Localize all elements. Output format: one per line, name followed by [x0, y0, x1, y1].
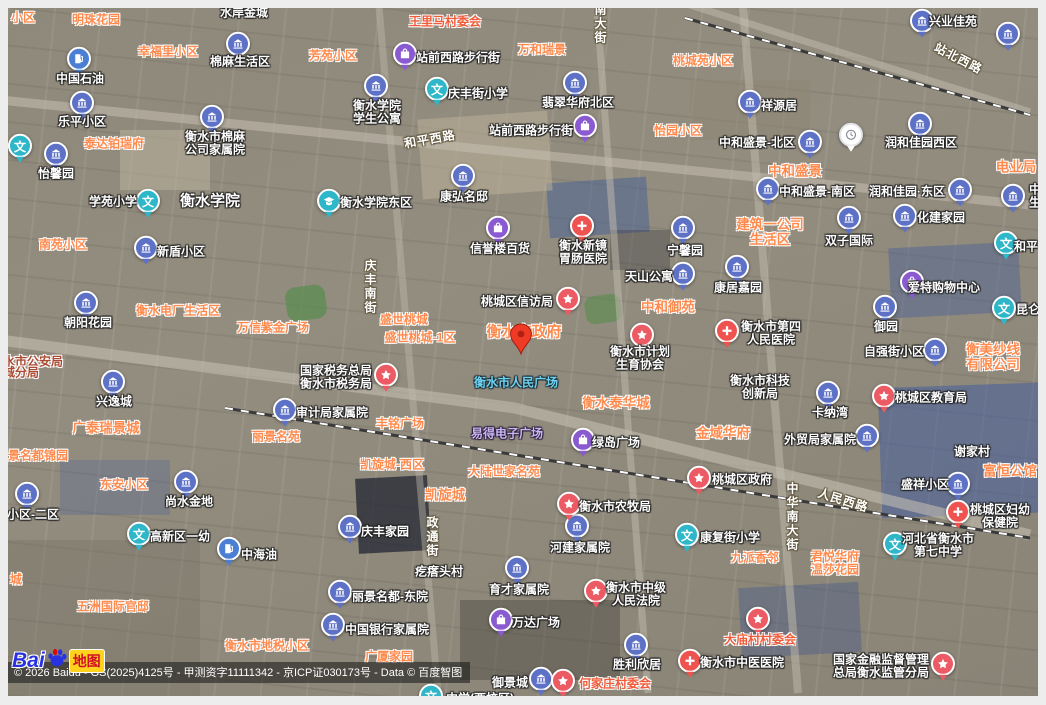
star-icon[interactable] — [551, 669, 575, 693]
shop-icon[interactable] — [393, 42, 417, 66]
dishui-xiaoqu[interactable]: 衡水市地税小区 — [225, 639, 309, 652]
bank-icon[interactable] — [451, 164, 475, 188]
hengshui-xueyuan-dongqu[interactable]: 衡水学院东区 — [340, 196, 412, 209]
mianma-shenghuoqu[interactable]: 棉麻生活区 — [210, 55, 270, 68]
xingfuli-xiaoqu[interactable]: 幸福里小区 — [138, 45, 198, 58]
cheng-partial[interactable]: 城 — [10, 573, 22, 586]
leping-xiaoqu[interactable]: 乐平小区 — [58, 115, 106, 128]
bank-icon[interactable] — [624, 633, 648, 657]
kangfujie-xiaoxue[interactable]: 康复街小学 — [700, 531, 760, 544]
bank-icon[interactable] — [671, 216, 695, 240]
star-icon[interactable] — [746, 607, 770, 631]
baidu-paw-icon — [46, 647, 68, 674]
hospital-icon[interactable] — [946, 500, 970, 524]
qingfeng-jiayuan[interactable]: 庆丰家园 — [361, 525, 409, 538]
gas-icon[interactable] — [217, 537, 241, 561]
xinjing-weichang-yiyuan[interactable]: 衡水新镜胃肠医院 — [559, 240, 607, 267]
shop-icon[interactable] — [489, 608, 513, 632]
huajian-jiayuan[interactable]: 化建家园 — [917, 211, 965, 224]
jinyu-huafu[interactable]: 金域华府 — [696, 425, 750, 440]
diqi-zhongxue[interactable]: 河北省衡水市第七中学 — [902, 533, 974, 560]
dianyeju[interactable]: 电业局 — [996, 159, 1037, 174]
lvdao-guangchang[interactable]: 绿岛广场 — [592, 436, 640, 449]
map-canvas[interactable]: Bai 地图 © 2026 Baidu - GS(2025)4125号 - 甲测… — [8, 8, 1038, 696]
jianzhu-yigongsi-shenghuoqu[interactable]: 建筑一公司生活区 — [736, 217, 804, 247]
shengshi-taocheng-1qu[interactable]: 盛世桃城-1区 — [385, 331, 456, 344]
dongan-xiaoqu[interactable]: 东安小区 — [100, 478, 148, 491]
bank-icon[interactable] — [923, 338, 947, 362]
yiyuan-xiaoqu[interactable]: 怡园小区 — [654, 124, 702, 137]
waimaoju-jiashuyuan[interactable]: 外贸局家属院 — [784, 433, 856, 446]
bank-icon[interactable] — [200, 105, 224, 129]
zhonghe-shengjing[interactable]: 中和盛景 — [768, 163, 822, 178]
yucai-jiashuyuan[interactable]: 育才家属院 — [489, 583, 549, 596]
lijing-mingdu-dongyuan[interactable]: 丽景名都-东院 — [352, 590, 428, 603]
wanda-guangchang[interactable]: 万达广场 — [512, 616, 560, 629]
bank-icon[interactable] — [893, 204, 917, 228]
xingyicheng[interactable]: 兴逸城 — [96, 395, 132, 408]
nongmuju[interactable]: 衡水市农牧局 — [579, 500, 651, 513]
wuzhou-guoji-guandi[interactable]: 五洲国际官邸 — [77, 600, 149, 613]
bank-icon[interactable] — [70, 91, 94, 115]
star-icon[interactable] — [374, 363, 398, 387]
fengming-guangchang[interactable]: 丰铭广场 — [376, 417, 424, 430]
tianshan-gongyu[interactable]: 天山公寓 — [625, 270, 673, 283]
zhanqian-xilu-buxingjie-1[interactable]: 站前西路步行街 — [416, 51, 500, 64]
bank-icon[interactable] — [15, 482, 39, 506]
baidu-logo[interactable]: Bai 地图 — [12, 647, 105, 674]
bank-icon[interactable] — [996, 22, 1020, 46]
fangyuan-xiaoqu[interactable]: 芳苑小区 — [309, 49, 357, 62]
school-icon[interactable]: 文 — [136, 189, 160, 213]
bank-icon[interactable] — [364, 74, 388, 98]
shop-icon[interactable] — [573, 114, 597, 138]
clock-icon[interactable] — [839, 123, 863, 147]
gedatoucun[interactable]: 疙瘩头村 — [415, 565, 463, 578]
bank-icon[interactable] — [174, 470, 198, 494]
yuyuan[interactable]: 御园 — [874, 320, 898, 333]
bank-icon[interactable] — [1001, 184, 1025, 208]
xueyuan-xiaoxue[interactable]: 学苑小学 — [89, 195, 137, 208]
bank-icon[interactable] — [134, 236, 158, 260]
shuian-jincheng[interactable]: 水岸金城 — [220, 8, 268, 20]
shengshi-taocheng[interactable]: 盛世桃城 — [380, 313, 428, 326]
bank-icon[interactable] — [873, 295, 897, 319]
aite-gouwu-zhongxin[interactable]: 爱特购物中心 — [908, 281, 980, 294]
xiaoqu-erqu-partial[interactable]: 小区-二区 — [8, 508, 59, 521]
zhonghe-shengjing-beiqu[interactable]: 中和盛景-北区 — [719, 136, 795, 149]
bank-icon[interactable] — [725, 255, 749, 279]
school-icon[interactable]: 文 — [992, 296, 1016, 320]
zhongji-renmin-fayuan[interactable]: 衡水市中级人民法院 — [606, 582, 666, 609]
nanyuan-xiaoqu[interactable]: 南苑小区 — [39, 238, 87, 251]
bank-icon[interactable] — [816, 381, 840, 405]
wanxin-zijin-guangchang[interactable]: 万信紫金广场 — [237, 321, 309, 334]
jihua-shengyu-xiehui[interactable]: 衡水市计划生育协会 — [610, 346, 670, 373]
bank-icon[interactable] — [328, 580, 352, 604]
kaixuancheng-xiqu[interactable]: 凯旋城-西区 — [360, 458, 424, 471]
bank-icon[interactable] — [908, 112, 932, 136]
ziqiangjie-xiaoqu[interactable]: 自强街小区 — [864, 345, 924, 358]
star-icon[interactable] — [931, 652, 955, 676]
baidu-logo-text: Bai — [12, 649, 45, 673]
ningxinyuan[interactable]: 宁馨园 — [667, 244, 703, 257]
edge-partial-right[interactable]: 中生 — [1029, 184, 1038, 211]
taochengqu-xinfangju[interactable]: 桃城区信访局 — [481, 295, 553, 308]
kaixuancheng[interactable]: 凯旋城 — [425, 487, 466, 502]
xindun-xiaoqu[interactable]: 新盾小区 — [157, 245, 205, 258]
wanhe-ruijing[interactable]: 万和瑞景 — [518, 43, 566, 56]
taochengqu-fuyou-baojianyuan[interactable]: 桃城区妇幼保健院 — [970, 504, 1030, 531]
kangju-jiayuan[interactable]: 康居嘉园 — [714, 281, 762, 294]
hejiazhuang-cunweihui[interactable]: 何家庄村委会 — [579, 677, 651, 690]
yide-dianzi-guangchang[interactable]: 易得电子广场 — [471, 427, 543, 440]
shengxiang-xiaoqu[interactable]: 盛祥小区 — [901, 478, 949, 491]
damiaocun-cunweihui[interactable]: 大庙村村委会 — [724, 633, 796, 646]
bank-icon[interactable] — [563, 71, 587, 95]
xinyulou-baihuo[interactable]: 信誉楼百货 — [470, 242, 530, 255]
bank-icon[interactable] — [338, 515, 362, 539]
gaoxinqu-yiyou[interactable]: 高新区一幼 — [150, 530, 210, 543]
bank-icon[interactable] — [505, 556, 529, 580]
hengmei-shaxian[interactable]: 衡美纱线有限公司 — [966, 342, 1020, 372]
bank-icon[interactable] — [321, 613, 345, 637]
star-icon[interactable] — [557, 492, 581, 516]
bank-icon[interactable] — [798, 130, 822, 154]
lijing-mingyuan[interactable]: 丽景名苑 — [252, 430, 300, 443]
bank-icon[interactable] — [226, 32, 250, 56]
zhonghaiyou[interactable]: 中海油 — [241, 548, 277, 561]
bank-icon[interactable] — [529, 667, 553, 691]
hospital-icon[interactable] — [715, 319, 739, 343]
xiejiacun[interactable]: 谢家村 — [954, 445, 990, 458]
jiupai-xianglin[interactable]: 九派香邻 — [731, 551, 779, 564]
star-icon[interactable] — [584, 579, 608, 603]
dianchang-shenghuoqu[interactable]: 衡水电厂生活区 — [136, 304, 220, 317]
shuangzi-guoji[interactable]: 双子国际 — [825, 234, 873, 247]
school-icon[interactable]: 文 — [127, 522, 151, 546]
gonganju-line2[interactable]: 城分局 — [8, 366, 39, 379]
taochengqu-jiaoyuju[interactable]: 桃城区教育局 — [895, 391, 967, 404]
road-nandajie: 南大街 — [594, 8, 606, 45]
runhe-jiayuan-xiqu[interactable]: 润和佳园西区 — [885, 136, 957, 149]
keji-chuangxinju[interactable]: 衡水市科技创新局 — [730, 375, 790, 402]
road-zhonghua-nandajie: 中华南大街 — [786, 482, 798, 552]
bank-icon[interactable] — [44, 142, 68, 166]
kunlun-partial[interactable]: 昆仑 — [1016, 303, 1038, 316]
taida-boruifu[interactable]: 泰达铂瑞府 — [84, 137, 144, 150]
zhongguo-shiyou[interactable]: 中国石油 — [56, 72, 104, 85]
xingye-jiayuan[interactable]: 兴业佳苑 — [929, 15, 977, 28]
yujingcheng[interactable]: 御景城 — [492, 676, 528, 689]
bank-icon[interactable] — [948, 178, 972, 202]
star-icon[interactable] — [687, 466, 711, 490]
hengshui-xueyuan-xuesheng-gongyu[interactable]: 衡水学院学生公寓 — [353, 100, 401, 127]
baidu-logo-suffix: 地图 — [69, 649, 105, 673]
xixiaoqu-partial[interactable]: 中学(西校区) — [446, 692, 514, 696]
zhonghe-shengjing-nanqu[interactable]: 中和盛景-南区 — [779, 185, 855, 198]
bank-icon[interactable] — [946, 472, 970, 496]
guangtai-ruijingcheng[interactable]: 广泰瑞景城 — [72, 420, 140, 435]
feicui-huafu-beiqu[interactable]: 翡翠华府北区 — [542, 96, 614, 109]
school-icon[interactable]: 文 — [8, 134, 32, 158]
shangshui-jindi[interactable]: 尚水金地 — [165, 495, 213, 508]
zhongguo-yinhang-jiashuyuan[interactable]: 中国银行家属院 — [345, 623, 429, 636]
selected-location-pin[interactable] — [509, 323, 533, 360]
hospital-icon[interactable] — [570, 214, 594, 238]
junyue-huafu-wensha-huayuan[interactable]: 君悦华府温莎花园 — [811, 551, 859, 578]
shop-icon[interactable] — [486, 216, 510, 240]
xiaoqu-partial[interactable]: 小区 — [11, 11, 35, 24]
disi-renmin-yiyuan[interactable]: 衡水市第四人民医院 — [741, 321, 801, 348]
runhe-jiayuan-dongqu[interactable]: 润和佳园·东区 — [869, 185, 945, 198]
zhongyi-yiyuan[interactable]: 衡水市中医医院 — [700, 656, 784, 669]
bank-icon[interactable] — [74, 291, 98, 315]
road-qingfeng-nanjie: 庆丰南街 — [364, 259, 376, 315]
star-icon[interactable] — [872, 384, 896, 408]
shenjiju-jiashuyuan[interactable]: 审计局家属院 — [296, 406, 368, 419]
zhanqian-xilu-buxingjie-2[interactable]: 站前西路步行街 — [489, 124, 573, 137]
school-icon[interactable]: 文 — [425, 77, 449, 101]
kanawan[interactable]: 卡纳湾 — [812, 406, 848, 419]
bank-icon[interactable] — [273, 398, 297, 422]
wanglima-cunweihui[interactable]: 王里马村委会 — [409, 15, 481, 28]
cap-icon[interactable] — [317, 189, 341, 213]
bank-icon[interactable] — [671, 262, 695, 286]
school-icon[interactable]: 文 — [675, 523, 699, 547]
jinrong-jianguan-fenju[interactable]: 国家金融监督管理总局衡水监管分局 — [833, 654, 929, 681]
kanghong-mingdi[interactable]: 康弘名邸 — [440, 190, 488, 203]
fuheng-gongguan[interactable]: 富恒公馆 — [983, 463, 1037, 478]
taochengqu-zhengfu[interactable]: 桃城区政府 — [712, 473, 772, 486]
dalu-shijia-mingyuan[interactable]: 大陆世家名苑 — [468, 465, 540, 478]
hengshui-taihuacheng[interactable]: 衡水泰华城 — [582, 395, 650, 410]
taochengyuan-xiaoqu[interactable]: 桃城苑小区 — [673, 54, 733, 67]
jingmingdu-jinyuan-partial[interactable]: 景名都锦园 — [8, 449, 68, 462]
shengli-xinju[interactable]: 胜利欣居 — [613, 658, 661, 671]
bank-icon[interactable] — [101, 370, 125, 394]
star-icon[interactable] — [630, 323, 654, 347]
xiangyuanju[interactable]: 祥源居 — [761, 99, 797, 112]
qingfengjie-xiaoxue[interactable]: 庆丰街小学 — [448, 87, 508, 100]
bank-icon[interactable] — [855, 424, 879, 448]
hengshui-xueyuan[interactable]: 衡水学院 — [180, 194, 240, 211]
bank-icon[interactable] — [837, 206, 861, 230]
renmin-guangchang[interactable]: 衡水市人民广场 — [474, 376, 558, 389]
zhonghe-yuyuan[interactable]: 中和御苑 — [641, 299, 695, 314]
bank-icon[interactable] — [756, 177, 780, 201]
heping-partial[interactable]: 和平 — [1014, 240, 1038, 253]
shuiwuju[interactable]: 国家税务总局衡水市税务局 — [300, 365, 372, 392]
bank-icon[interactable] — [738, 90, 762, 114]
yixinyuan[interactable]: 怡馨园 — [38, 167, 74, 180]
star-icon[interactable] — [556, 287, 580, 311]
mingzhu-huayuan[interactable]: 明珠花园 — [72, 13, 120, 26]
road-zhengtongjie: 政通街 — [426, 516, 438, 558]
chaoyang-huayuan[interactable]: 朝阳花园 — [64, 316, 112, 329]
gas-icon[interactable] — [67, 47, 91, 71]
mianma-gongsi-jiashuyuan[interactable]: 衡水市棉麻公司家属院 — [185, 131, 245, 158]
hejian-jiashuyuan[interactable]: 河建家属院 — [550, 541, 610, 554]
hospital-icon[interactable] — [678, 649, 702, 673]
